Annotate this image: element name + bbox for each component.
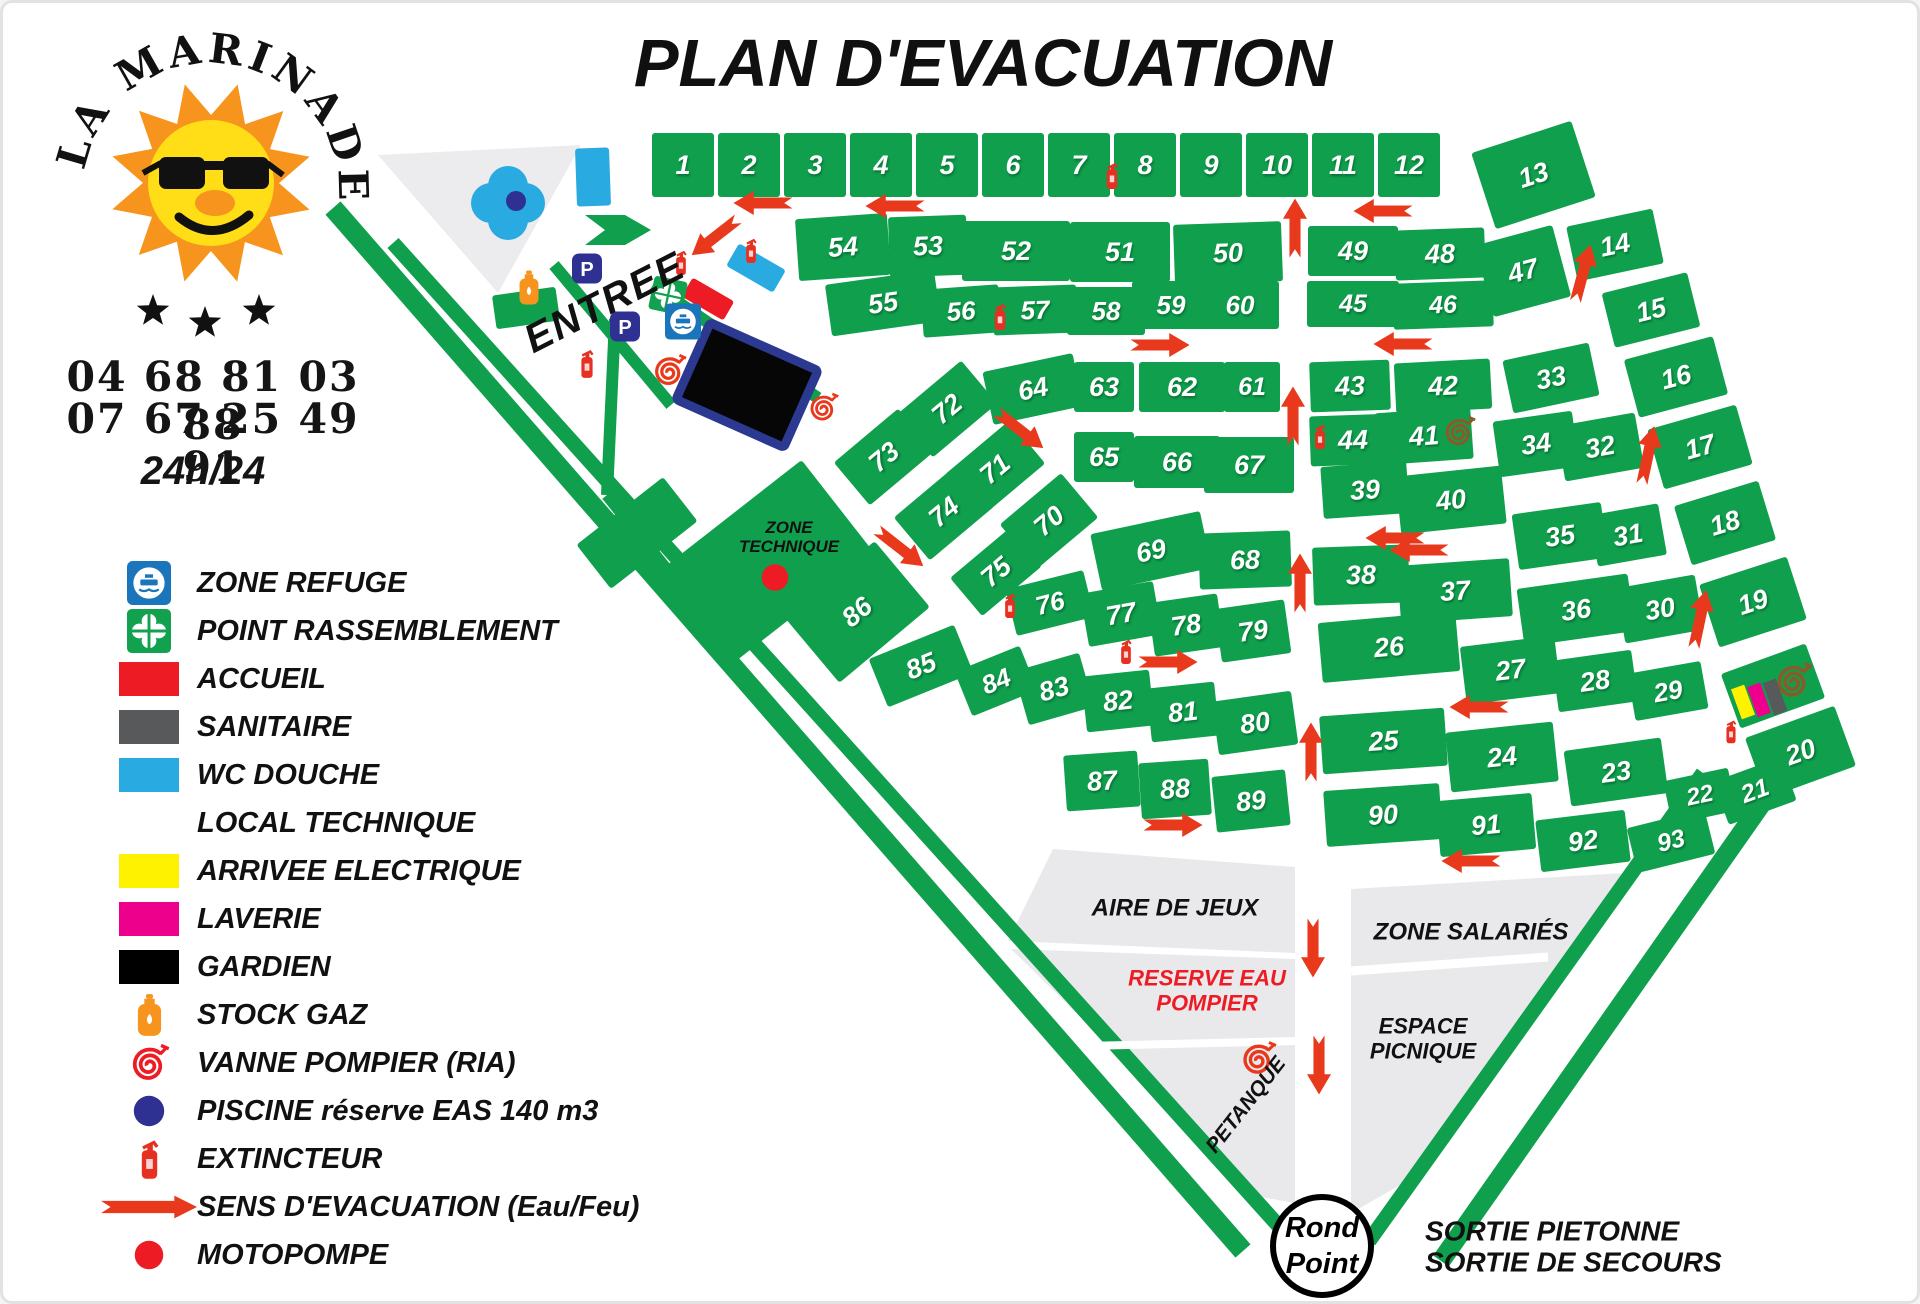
legend-label: MOTOPOMPE [197,1239,388,1272]
plot-8: 8 [1114,133,1176,197]
evacuation-arrow-icon [1307,1033,1331,1097]
gas-bottle-icon [517,270,542,311]
plot-26: 26 [1318,611,1461,683]
plot-68: 68 [1198,530,1292,589]
laverie-icon [101,902,197,936]
plot-78: 78 [1148,593,1225,656]
plot-91: 91 [1436,793,1537,857]
plot-40: 40 [1395,466,1506,535]
plot-25: 25 [1319,708,1448,775]
legend-item-zone-refuge: ZONE REFUGE [101,559,639,607]
hours-label: 24h/24 [33,449,373,494]
extinguisher-icon [577,348,598,385]
plot-65: 65 [1074,432,1134,482]
plot-59: 59 [1132,281,1210,329]
plot-4: 4 [850,133,912,197]
plot-1: 1 [652,133,714,197]
piscine-reserve-icon [506,191,526,211]
evacuation-plan: LA MARINADE PLAN D'EVACUATION 04 68 81 0… [0,0,1920,1304]
evacuation-arrow-icon [1128,333,1192,357]
plot-34: 34 [1492,411,1579,478]
legend-item-point-rassemblement: POINT RASSEMBLEMENT [101,607,639,655]
extinguisher-icon [1723,719,1740,750]
fire-valve-icon [806,391,840,430]
legend-label: WC DOUCHE [197,759,379,792]
legend: ZONE REFUGEPOINT RASSEMBLEMENTACCUEILSAN… [101,559,639,1279]
legend-label: ZONE REFUGE [197,567,406,600]
evacuation-arrow-icon [1301,916,1325,980]
plot-81: 81 [1146,682,1219,743]
legend-label: LAVERIE [197,903,321,936]
svg-text:P: P [580,259,593,281]
plot-52: 52 [962,221,1070,281]
extinguisher-icon [1117,638,1135,671]
plot-46: 46 [1392,280,1494,329]
label-espace-picnique: ESPACE PICNIQUE [1370,1014,1476,1063]
plot-90: 90 [1323,783,1443,847]
legend-label: PISCINE réserve EAS 140 m3 [197,1095,598,1128]
legend-label: STOCK GAZ [197,999,367,1032]
plot-42: 42 [1394,359,1492,414]
legend-item-motopompe: MOTOPOMPE [101,1231,639,1279]
plot-9: 9 [1180,133,1242,197]
zone-refuge-icon [101,561,197,605]
legend-item-piscine: PISCINE réserve EAS 140 m3 [101,1087,639,1135]
plot-5: 5 [916,133,978,197]
evacuation-arrow-icon [1447,695,1511,719]
legend-label: VANNE POMPIER (RIA) [197,1047,515,1080]
legend-item-arrivee-electrique: ARRIVEE ELECTRIQUE [101,847,639,895]
plot-11: 11 [1312,133,1374,197]
legend-item-gardien: GARDIEN [101,943,639,991]
legend-label: ACCUEIL [197,663,326,696]
evacuation-arrow-icon [1288,551,1312,615]
arrivee-electrique-icon [101,854,197,888]
plot-6: 6 [982,133,1044,197]
plot-12: 12 [1378,133,1440,197]
piscine-icon [101,1095,197,1127]
label-aire-de-jeux: AIRE DE JEUX [1092,896,1259,923]
legend-label: LOCAL TECHNIQUE [197,807,475,840]
legend-item-accueil: ACCUEIL [101,655,639,703]
evacuation-arrow-icon [1371,332,1435,356]
legend-label: EXTINCTEUR [197,1143,382,1176]
legend-label: POINT RASSEMBLEMENT [197,615,558,648]
extincteur-icon [101,1137,197,1181]
label-zone-technique: ZONE TECHNIQUE [739,518,839,556]
refuge-zone-icon [665,304,701,345]
plot-60: 60 [1201,281,1279,329]
evacuation-arrow-icon [1141,813,1205,837]
roundabout-line2: Point [1286,1246,1359,1282]
fire-valve-icon [650,352,688,395]
legend-item-wc-douche: WC DOUCHE [101,751,639,799]
plot-28: 28 [1552,650,1638,713]
motopompe-icon [101,1240,197,1270]
map-shape [575,147,611,206]
motopompe-icon [761,564,789,597]
plot-89: 89 [1211,769,1290,832]
extinguisher-icon [742,237,760,270]
legend-label: SENS D'EVACUATION (Eau/Feu) [197,1191,639,1224]
extinguisher-icon [1102,161,1122,196]
evacuation-arrow-icon [863,194,927,218]
accueil-icon [101,662,197,696]
legend-item-sens-evacuation: SENS D'EVACUATION (Eau/Feu) [101,1183,639,1231]
roundabout-line1: Rond [1285,1210,1359,1246]
legend-label: ARRIVEE ELECTRIQUE [197,855,521,888]
plot-79: 79 [1215,599,1292,662]
legend-item-local-technique: LOCAL TECHNIQUE [101,799,639,847]
plot-10: 10 [1246,133,1308,197]
plot-24: 24 [1445,722,1559,793]
plot-54: 54 [795,213,891,281]
local-technique-icon [101,806,197,840]
plot-2: 2 [718,133,780,197]
evacuation-arrow-icon [1283,196,1307,260]
label-sortie: SORTIE PIETONNE SORTIE DE SECOURS [1425,1216,1722,1279]
evacuation-arrow-icon [731,191,795,215]
plot-48: 48 [1394,227,1486,280]
plot-37: 37 [1397,558,1513,624]
plot-49: 49 [1308,226,1398,276]
label-reserve-eau: RESERVE EAU POMPIER [1128,966,1286,1015]
legend-label: SANITAIRE [197,711,351,744]
plot-43: 43 [1309,360,1391,413]
sens-evacuation-icon [101,1193,197,1221]
legend-item-vanne-pompier: VANNE POMPIER (RIA) [101,1039,639,1087]
vanne-pompier-icon [101,1041,197,1085]
fire-valve-icon [1441,414,1477,455]
point-rassemblement-icon [101,609,197,653]
plot-3: 3 [784,133,846,197]
gardien-icon [101,950,197,984]
plot-62: 62 [1139,362,1225,412]
entrance-chevron-icon [585,215,651,245]
label-zone-salaries: ZONE SALARIÉS [1374,920,1569,947]
legend-item-sanitaire: SANITAIRE [101,703,639,751]
plot-50: 50 [1173,221,1283,285]
plot-92: 92 [1535,810,1631,873]
extinguisher-icon [1311,423,1329,456]
facility-swatch [1768,680,1782,714]
zone-divider [1576,1075,1651,1153]
plot-80: 80 [1212,691,1299,756]
evacuation-arrow-icon [1439,849,1503,873]
legend-label: GARDIEN [197,951,331,984]
plot-45: 45 [1307,281,1399,327]
sanitaire-icon [101,710,197,744]
legend-item-stock-gaz: STOCK GAZ [101,991,639,1039]
plot-51: 51 [1070,222,1170,282]
legend-item-extincteur: EXTINCTEUR [101,1135,639,1183]
page-title: PLAN D'EVACUATION [543,25,1423,102]
wc-douche-icon [101,758,197,792]
evacuation-arrow-icon [1281,384,1305,448]
plot-88: 88 [1138,759,1212,820]
plot-61: 61 [1224,362,1280,412]
evacuation-arrow-icon [1387,538,1451,562]
campsite-logo: LA MARINADE [53,11,373,348]
plot-53: 53 [888,215,968,278]
plot-7: 7 [1048,133,1110,197]
evacuation-arrow-icon [1299,720,1323,784]
legend-item-laverie: LAVERIE [101,895,639,943]
extinguisher-icon [1001,592,1019,625]
plot-87: 87 [1063,750,1141,811]
extinguisher-icon [990,302,1010,337]
roundabout: Rond Point [1270,1194,1374,1298]
stock-gaz-icon [101,993,197,1037]
evacuation-arrow-icon [1351,199,1415,223]
evacuation-arrow-icon [1136,650,1200,674]
